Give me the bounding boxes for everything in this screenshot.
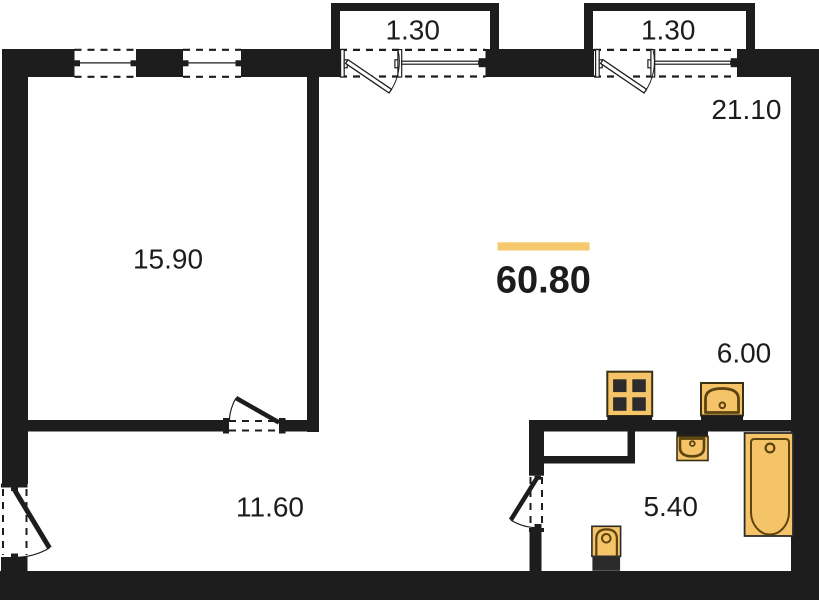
svg-text:60.80: 60.80 [496,259,591,301]
svg-text:11.60: 11.60 [236,491,304,522]
svg-text:1.30: 1.30 [641,15,696,46]
svg-text:5.40: 5.40 [643,491,698,522]
svg-text:15.90: 15.90 [133,244,203,275]
svg-text:6.00: 6.00 [717,337,772,368]
svg-text:21.10: 21.10 [711,94,781,125]
svg-text:1.30: 1.30 [385,15,440,46]
